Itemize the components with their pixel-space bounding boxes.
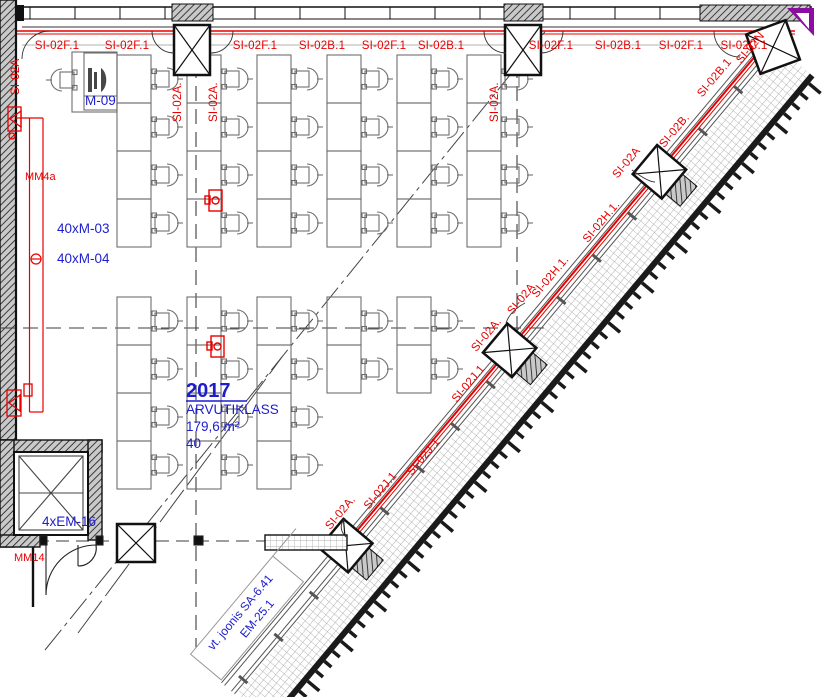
chair-icon: [362, 212, 393, 234]
chair-icon: [222, 358, 253, 380]
chair-icon: [292, 406, 323, 428]
equipment-label-40xm03: 40xM-03: [57, 221, 110, 236]
wall-label: SI-02B.1: [595, 40, 641, 52]
chair-icon: [152, 406, 183, 428]
cable-label: SI-02A.: [505, 279, 540, 317]
wall-label-vertical: SI-02A: [10, 59, 22, 95]
chair-icon: [152, 454, 183, 476]
wall-label: SI-02B.1: [299, 40, 345, 52]
chair-icon: [222, 212, 253, 234]
wall-label-vertical: SI-02A.: [172, 82, 184, 122]
floor-plan-svg: vt. joonis SA-6.41 EM-25.1 SI-02F.1 SI-0…: [0, 0, 825, 697]
room-name: ARVUTIKLASS: [186, 402, 279, 417]
diagonal-cable-labels: SI-02N SI-02B.1 SI-02B. SI-02A SI-02H.1.…: [323, 30, 767, 532]
chair-icon: [152, 212, 183, 234]
chair-icon: [222, 116, 253, 138]
room-number: 2017: [186, 380, 231, 402]
chair-icon: [502, 116, 533, 138]
wall-label-vertical: SI-02A.: [489, 82, 501, 122]
wall-segment: [265, 535, 347, 550]
wall-label: SI-02F.1: [529, 40, 573, 52]
chair-icon: [362, 68, 393, 90]
floor-plan-page: vt. joonis SA-6.41 EM-25.1 SI-02F.1 SI-0…: [0, 0, 825, 697]
equipment-label-40xm04: 40xM-04: [57, 251, 110, 266]
label-mm14: MM14: [14, 552, 45, 564]
chair-icon: [292, 358, 323, 380]
chair-icon: [362, 164, 393, 186]
chair-icon: [292, 212, 323, 234]
cable-label: SI-02B.: [657, 112, 692, 150]
chair-icon: [222, 164, 253, 186]
chair-icon: [292, 68, 323, 90]
chair-icon: [292, 454, 323, 476]
label-mm4a: MM4a: [25, 171, 56, 183]
chair-icon: [432, 68, 463, 90]
wall-label: SI-02F.1: [659, 40, 703, 52]
wall-label: SI-02F.1: [35, 40, 79, 52]
top-columns: [174, 25, 541, 75]
chair-icon: [292, 310, 323, 332]
chair-icon: [292, 116, 323, 138]
chair-icon: [362, 358, 393, 380]
wall-label-vertical: SI-02A.: [208, 82, 220, 122]
room-capacity: 40: [186, 436, 201, 451]
column-icon: [117, 524, 155, 562]
chair-icon: [432, 358, 463, 380]
top-wall: [0, 4, 812, 62]
chair-icon: [432, 116, 463, 138]
wall-label: SI-02F.1: [233, 40, 277, 52]
chair-icon: [292, 164, 323, 186]
room-area: 179,6 m²: [186, 419, 240, 434]
wall-label: SI-02F.1: [105, 40, 149, 52]
chair-icon: [432, 212, 463, 234]
red-marker: [205, 190, 222, 211]
chair-icon: [152, 358, 183, 380]
wall-label: SI-02B.1: [418, 40, 464, 52]
top-wall-labels: SI-02F.1 SI-02F.1 SI-02F.1 SI-02B.1 SI-0…: [10, 40, 767, 122]
chair-icon: [502, 164, 533, 186]
room-tag: 2017 ARVUTIKLASS 179,6 m² 40: [186, 380, 279, 451]
chair-icon: [152, 164, 183, 186]
chair-icon: [222, 310, 253, 332]
cable-line-diagonal: [337, 46, 764, 555]
chair-icon: [152, 310, 183, 332]
chair-icon: [222, 454, 253, 476]
monitor-icon: [88, 68, 92, 92]
equipment-label-4xem16: 4xEM-16: [42, 514, 96, 529]
chair-icon: [432, 164, 463, 186]
chair-icon: [432, 310, 463, 332]
chair-icon: [502, 212, 533, 234]
chair-icon: [362, 310, 393, 332]
riser-line: [16, 118, 43, 412]
chair-icon: [362, 116, 393, 138]
chair-icon: [222, 68, 253, 90]
wall-label: SI-02F.1: [362, 40, 406, 52]
equipment-label-m09: M-09: [85, 93, 116, 108]
